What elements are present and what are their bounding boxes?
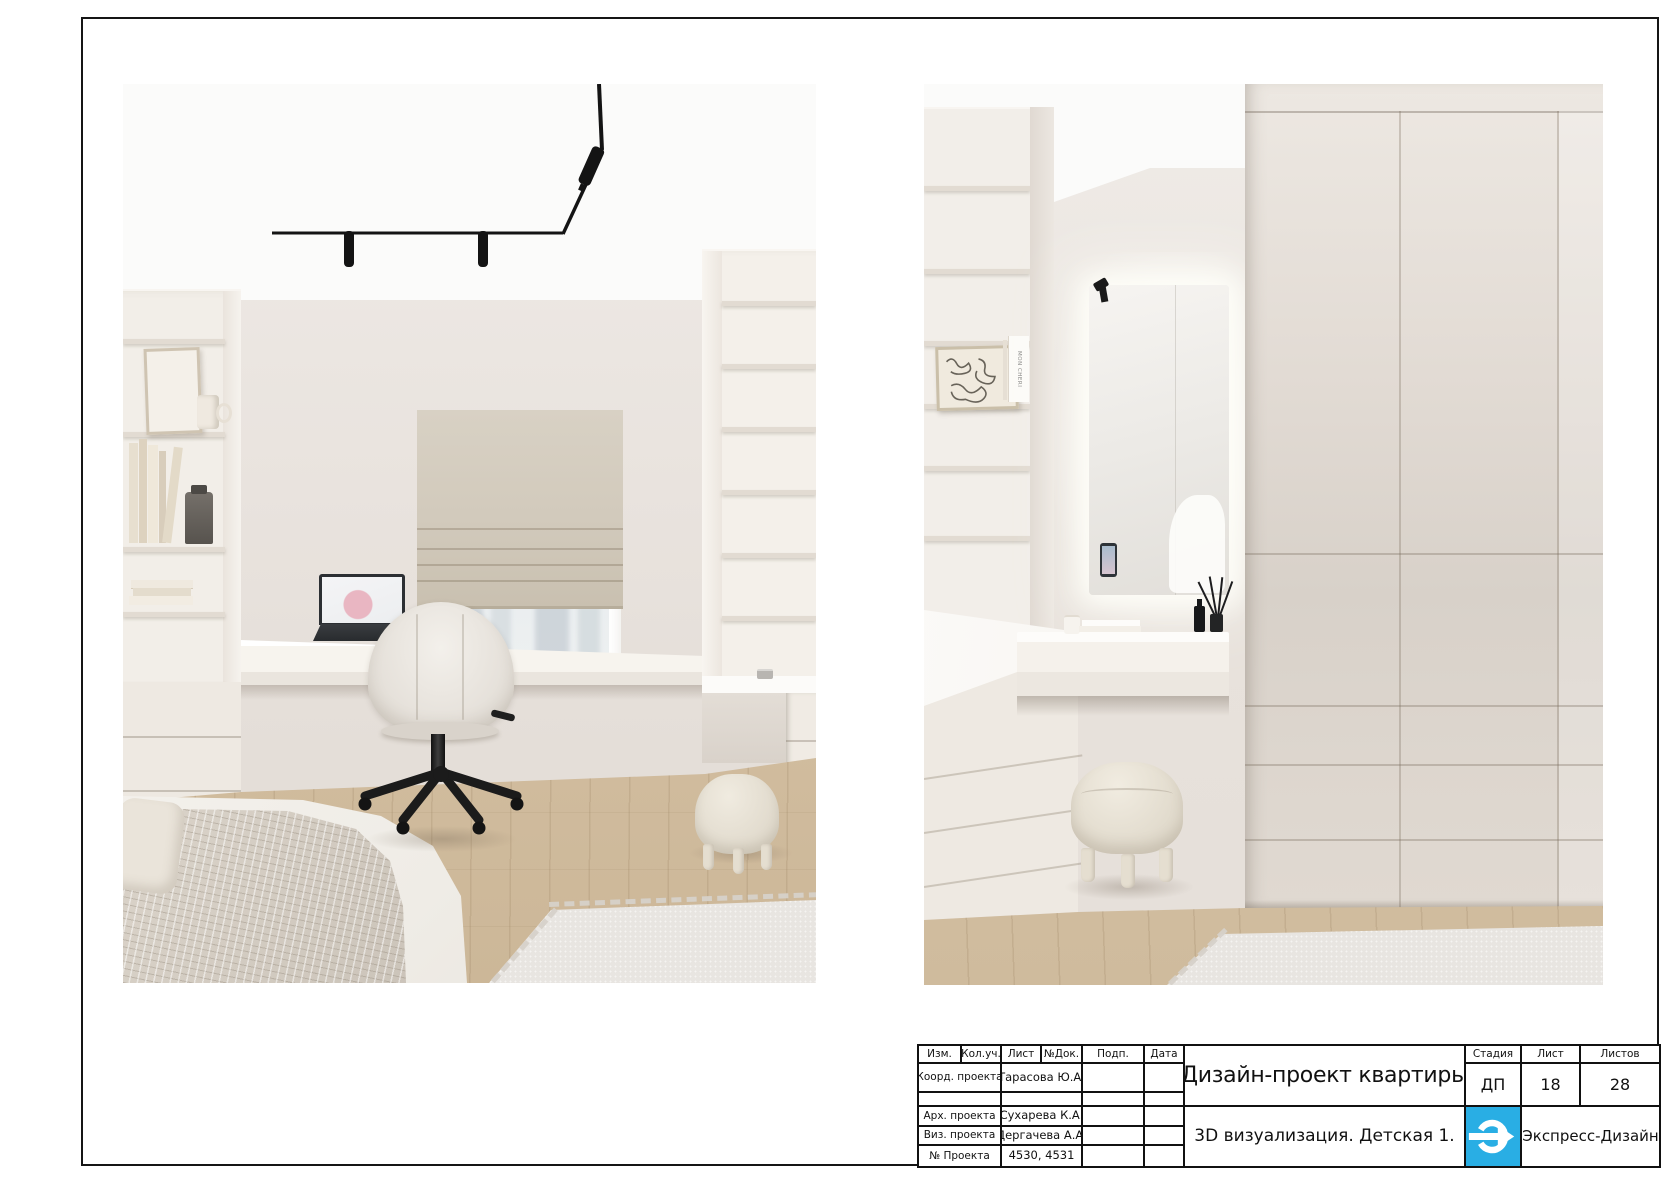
tb-row-value bbox=[1002, 1093, 1083, 1107]
wardrobe-drawer-seam bbox=[1245, 764, 1603, 766]
tb-company-name: Экспресс-Дизайн bbox=[1522, 1107, 1659, 1166]
tb-signature-cell bbox=[1083, 1107, 1145, 1127]
tb-header-izm: Изм. bbox=[919, 1046, 962, 1064]
wardrobe-seam bbox=[1245, 111, 1603, 113]
shelf-line bbox=[924, 466, 1030, 471]
tb-row-label: Арх. проекта bbox=[919, 1107, 1002, 1127]
tb-sheet-title: 3D визуализация. Детская 1. bbox=[1185, 1107, 1466, 1166]
pouf-leg bbox=[1121, 854, 1135, 888]
vanity-table bbox=[1017, 632, 1229, 696]
tb-sheets-label: Листов bbox=[1581, 1046, 1659, 1064]
shelf-line bbox=[924, 186, 1030, 191]
shelf-line bbox=[924, 536, 1030, 541]
ceiling-track-light bbox=[123, 84, 816, 983]
wardrobe-seam bbox=[1399, 111, 1401, 908]
tb-date-cell bbox=[1145, 1107, 1185, 1127]
diffuser-jar bbox=[1210, 614, 1223, 632]
wardrobe bbox=[1245, 84, 1603, 908]
tb-row-value: Тарасова Ю.А. bbox=[1002, 1064, 1083, 1093]
render-right-vanity-wardrobe: MON CHERI bbox=[924, 84, 1603, 985]
tb-date-cell bbox=[1145, 1127, 1185, 1146]
tb-header-ndok: №Док. bbox=[1042, 1046, 1083, 1064]
tb-header-podp: Подп. bbox=[1083, 1046, 1145, 1064]
tb-row-value: Сухарева К.А. bbox=[1002, 1107, 1083, 1127]
tb-sheet-label: Лист bbox=[1522, 1046, 1581, 1064]
drawing-sheet: MON CHERI bbox=[0, 0, 1680, 1187]
vanity-shadow bbox=[1017, 696, 1229, 716]
tb-sheets-value: 28 bbox=[1581, 1064, 1659, 1107]
tb-header-data: Дата bbox=[1145, 1046, 1185, 1064]
tb-date-cell bbox=[1145, 1064, 1185, 1093]
backlit-mirror bbox=[1089, 285, 1229, 595]
tb-header-list: Лист bbox=[1002, 1046, 1042, 1064]
pouf-seat-seam bbox=[1081, 788, 1173, 800]
wardrobe-drawer-seam bbox=[1245, 705, 1603, 707]
render-left-desk-area bbox=[123, 84, 816, 983]
tb-project-title: Дизайн-проект квартиры bbox=[1185, 1046, 1466, 1107]
tb-row-label: № Проекта bbox=[919, 1146, 1002, 1166]
pouf bbox=[1071, 762, 1183, 892]
mirror-reflection-phone bbox=[1100, 543, 1117, 577]
tb-stage-value: ДП bbox=[1466, 1064, 1522, 1107]
tb-header-koluch: Кол.уч. bbox=[962, 1046, 1002, 1064]
tb-logo-cell bbox=[1466, 1107, 1522, 1166]
company-logo-icon bbox=[1466, 1107, 1520, 1166]
tb-signature-cell bbox=[1083, 1064, 1145, 1093]
tb-stage-label: Стадия bbox=[1466, 1046, 1522, 1064]
tb-sheet-value: 18 bbox=[1522, 1064, 1581, 1107]
pouf-leg bbox=[1159, 848, 1173, 882]
book bbox=[1003, 340, 1007, 400]
track-spotlight bbox=[344, 231, 354, 267]
mirror-reflection-chair bbox=[1169, 495, 1225, 593]
book: MON CHERI bbox=[1008, 336, 1029, 402]
tb-date-cell bbox=[1145, 1093, 1185, 1107]
title-block: Изм. Кол.уч. Лист №Док. Подп. Дата Дизай… bbox=[917, 1044, 1661, 1168]
tb-row-value: 4530, 4531 bbox=[1002, 1146, 1083, 1166]
wardrobe-seam bbox=[1245, 553, 1603, 555]
wardrobe-drawer-seam bbox=[1245, 839, 1603, 841]
bottle-cap bbox=[1197, 599, 1202, 607]
track-spotlight bbox=[574, 145, 605, 193]
tb-signature-cell bbox=[1083, 1093, 1145, 1107]
tb-date-cell bbox=[1145, 1146, 1185, 1166]
pouf-leg bbox=[1081, 848, 1095, 882]
book-spine-text: MON CHERI bbox=[1016, 351, 1022, 387]
tb-row-label bbox=[919, 1093, 1002, 1107]
vanity-book bbox=[1079, 626, 1141, 632]
shelf-line bbox=[924, 269, 1030, 274]
wardrobe-door-highlight bbox=[1559, 111, 1603, 908]
tb-signature-cell bbox=[1083, 1127, 1145, 1146]
tb-row-label: Виз. проекта bbox=[919, 1127, 1002, 1146]
tb-signature-cell bbox=[1083, 1146, 1145, 1166]
cosmetic-bottle bbox=[1194, 606, 1205, 632]
phone-screen bbox=[1102, 546, 1115, 574]
tb-row-value: Дергачева А.А. bbox=[1002, 1127, 1083, 1146]
pouf-body bbox=[1071, 762, 1183, 854]
vanity-jar bbox=[1064, 615, 1080, 634]
track-spotlight bbox=[478, 231, 488, 267]
tb-row-label: Коорд. проекта bbox=[919, 1064, 1002, 1093]
